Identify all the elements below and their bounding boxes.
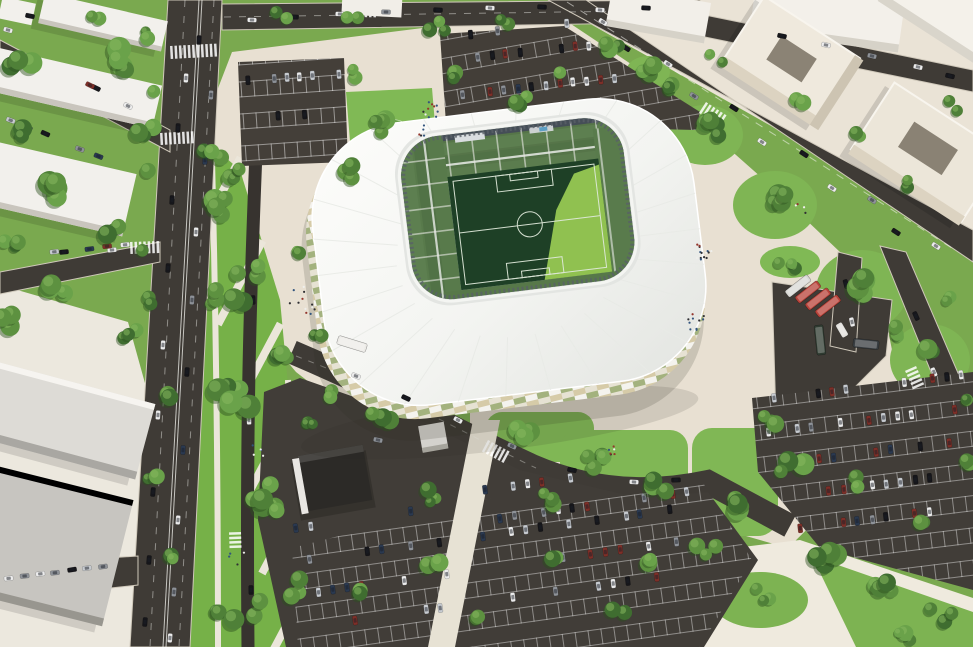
- car: [523, 525, 529, 535]
- car: [408, 506, 414, 516]
- person: [696, 257, 698, 259]
- car: [180, 445, 185, 454]
- car: [482, 485, 488, 495]
- car: [302, 110, 307, 120]
- person: [706, 257, 708, 259]
- car: [330, 585, 336, 595]
- scene-canvas: [0, 0, 973, 647]
- car: [797, 523, 803, 533]
- car: [918, 442, 923, 452]
- person: [424, 113, 426, 115]
- car: [617, 545, 623, 555]
- car: [603, 547, 609, 557]
- car: [184, 367, 189, 376]
- car: [529, 82, 535, 92]
- person: [229, 553, 231, 555]
- car: [913, 475, 919, 485]
- car: [444, 569, 450, 579]
- car: [895, 411, 900, 421]
- person: [613, 445, 615, 447]
- person: [303, 291, 305, 293]
- person: [613, 448, 615, 450]
- car: [487, 87, 493, 97]
- person: [305, 312, 307, 314]
- car: [249, 585, 254, 594]
- person: [609, 453, 611, 455]
- person: [691, 313, 693, 315]
- person: [428, 116, 430, 118]
- person: [692, 317, 694, 319]
- car: [808, 422, 814, 432]
- person: [310, 313, 312, 315]
- car: [516, 84, 522, 94]
- person: [803, 206, 805, 208]
- car: [831, 453, 836, 463]
- aerial-stadium-render: [0, 0, 973, 647]
- person: [260, 448, 262, 450]
- car: [183, 73, 188, 82]
- car: [927, 507, 933, 517]
- person: [433, 105, 435, 107]
- car: [275, 111, 280, 121]
- car: [841, 485, 847, 495]
- car: [815, 389, 821, 399]
- car: [843, 384, 849, 394]
- person: [698, 319, 700, 321]
- person: [314, 308, 316, 310]
- car: [929, 373, 935, 383]
- car: [553, 586, 559, 596]
- person: [695, 329, 697, 331]
- person: [703, 315, 705, 317]
- person: [311, 303, 313, 305]
- car: [433, 7, 442, 12]
- car: [284, 72, 289, 82]
- car: [160, 340, 165, 349]
- car: [826, 486, 831, 496]
- car: [594, 515, 600, 525]
- person: [687, 318, 689, 320]
- car: [501, 85, 507, 95]
- car: [572, 41, 578, 51]
- person: [262, 455, 264, 457]
- car: [883, 479, 889, 489]
- car: [901, 378, 907, 388]
- person: [431, 103, 433, 105]
- person: [708, 251, 710, 253]
- car: [654, 572, 660, 582]
- car: [142, 617, 147, 627]
- car: [175, 123, 180, 132]
- car: [569, 503, 575, 513]
- car: [475, 52, 481, 62]
- person: [228, 555, 230, 557]
- person: [698, 245, 700, 247]
- car: [512, 510, 518, 520]
- person: [418, 133, 420, 135]
- car: [610, 579, 616, 589]
- car: [674, 537, 680, 547]
- person: [689, 328, 691, 330]
- person: [696, 244, 698, 246]
- car: [559, 44, 565, 54]
- car: [946, 438, 952, 448]
- car: [297, 72, 302, 81]
- person: [293, 289, 295, 291]
- car: [641, 5, 650, 10]
- car: [480, 532, 486, 542]
- person: [428, 101, 430, 103]
- person: [700, 252, 702, 254]
- car: [598, 75, 603, 85]
- car: [841, 517, 847, 527]
- car: [316, 587, 322, 597]
- car: [510, 481, 516, 491]
- car: [193, 227, 198, 236]
- person: [243, 552, 245, 554]
- person: [253, 454, 255, 456]
- person: [297, 302, 299, 304]
- car: [883, 512, 889, 522]
- person: [423, 134, 425, 136]
- car: [502, 49, 508, 59]
- car: [495, 26, 500, 36]
- car: [539, 477, 545, 487]
- car: [423, 604, 429, 614]
- person: [303, 286, 305, 288]
- person: [796, 203, 798, 205]
- car: [59, 249, 69, 255]
- person: [435, 116, 437, 118]
- car: [4, 576, 14, 582]
- person: [688, 322, 690, 324]
- person: [427, 108, 429, 110]
- person: [301, 298, 303, 300]
- car: [272, 74, 277, 84]
- car: [247, 18, 256, 23]
- person: [703, 256, 705, 258]
- car: [208, 90, 213, 99]
- car: [490, 50, 496, 60]
- car: [525, 479, 531, 489]
- car: [566, 519, 572, 529]
- car: [35, 571, 45, 577]
- person: [700, 258, 702, 260]
- person: [311, 306, 313, 308]
- car: [381, 10, 390, 15]
- car: [518, 48, 523, 58]
- car: [171, 587, 176, 597]
- person: [236, 563, 238, 565]
- person: [422, 111, 424, 113]
- car: [838, 418, 844, 428]
- car: [543, 81, 548, 91]
- person: [437, 111, 439, 113]
- car: [245, 76, 250, 85]
- person: [423, 124, 425, 126]
- car: [50, 570, 60, 576]
- person: [705, 252, 707, 254]
- person: [422, 128, 424, 130]
- car: [85, 246, 95, 252]
- car: [510, 592, 516, 602]
- person: [804, 212, 806, 214]
- car: [629, 479, 638, 484]
- car: [408, 541, 414, 551]
- car: [898, 478, 904, 488]
- car: [401, 576, 407, 586]
- car: [564, 19, 569, 29]
- car: [625, 576, 631, 586]
- car: [436, 538, 442, 548]
- person: [608, 449, 610, 451]
- car: [584, 77, 590, 87]
- car: [336, 69, 341, 79]
- car: [310, 71, 315, 80]
- car: [794, 424, 800, 434]
- car: [150, 487, 155, 497]
- car: [944, 372, 949, 382]
- parking-grid-northwest: [238, 58, 348, 166]
- person: [710, 250, 712, 252]
- car: [50, 249, 60, 255]
- car: [460, 90, 466, 100]
- car: [671, 478, 680, 483]
- person: [702, 318, 704, 320]
- car: [612, 74, 617, 84]
- car: [20, 573, 30, 578]
- person: [252, 444, 254, 446]
- car: [98, 564, 108, 570]
- car: [189, 295, 194, 304]
- car: [888, 444, 894, 454]
- stadium-bowl: [397, 114, 639, 304]
- car: [165, 263, 170, 272]
- person: [289, 302, 291, 304]
- car: [537, 522, 543, 532]
- car: [854, 516, 860, 526]
- car: [816, 454, 822, 464]
- car: [169, 195, 174, 204]
- car: [120, 242, 130, 247]
- car: [308, 522, 314, 532]
- person: [436, 105, 438, 107]
- car: [167, 633, 172, 643]
- car: [667, 504, 673, 514]
- car: [468, 30, 473, 40]
- car: [595, 7, 604, 12]
- car: [586, 41, 591, 51]
- person: [613, 453, 615, 455]
- car: [927, 473, 932, 483]
- person: [304, 308, 306, 310]
- car: [437, 603, 443, 613]
- car: [155, 410, 160, 419]
- car: [570, 77, 576, 87]
- car: [364, 546, 370, 556]
- car: [958, 370, 964, 380]
- car: [537, 4, 546, 9]
- car: [175, 515, 180, 525]
- car: [196, 35, 201, 44]
- car: [485, 5, 494, 10]
- car: [146, 555, 151, 565]
- car: [881, 413, 886, 423]
